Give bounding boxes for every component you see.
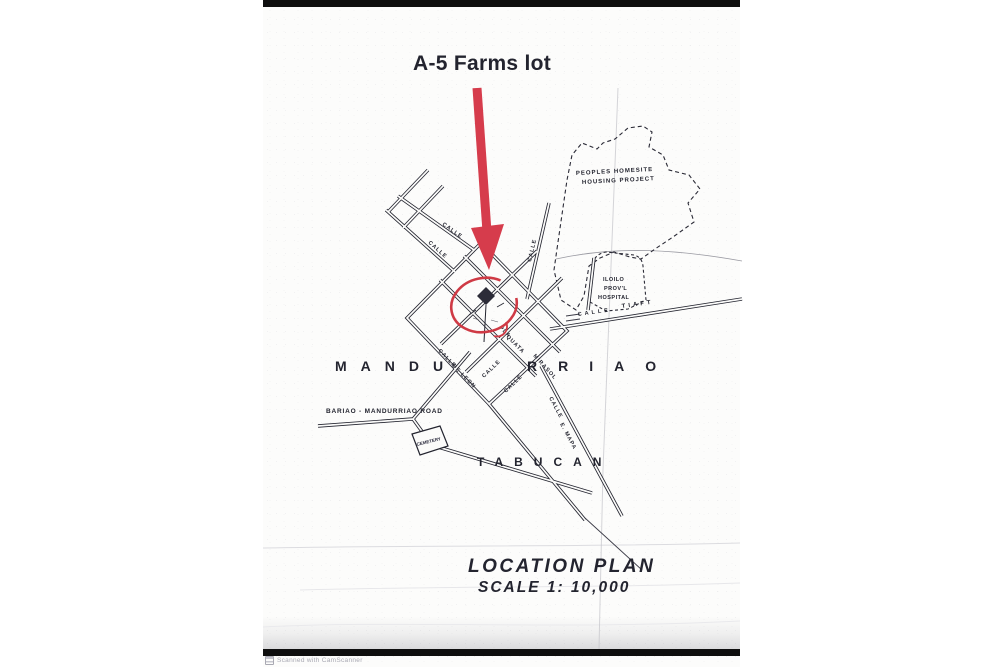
street-label: CALLE [503,374,524,395]
watermark-text: Scanned with CamScanner [277,657,363,664]
street-label: CALLE [481,359,502,380]
camscanner-watermark: Scanned with CamScanner [265,655,363,665]
crease-line [263,543,740,548]
peoples-homesite-dashed-boundary [554,126,700,310]
arrow-shaft [477,88,487,232]
bariao-mandurriao-road-label: BARIAO - MANDURRIAO ROAD [326,408,443,415]
map-title: LOCATION PLAN [468,556,655,577]
street-label: TIAFT [621,300,654,310]
hospital-label-line3: HOSPITAL [598,295,630,301]
camscanner-icon [265,656,274,665]
district-tabucan: TABUCAN [477,455,612,469]
location-plan-map: PEOPLES HOMESITE HOUSING PROJECT ILOILO … [0,0,1000,667]
page-background: PEOPLES HOMESITE HOUSING PROJECT ILOILO … [0,0,1000,667]
street-label: QUATA [505,334,526,355]
town-grid-perimeter [407,243,567,404]
hospital-label-line2: PROV'L [604,286,627,292]
cemetery-block: CEMETERY [412,426,448,455]
street-label: CALLE [577,307,611,318]
hospital-label-line1: ILOILO [603,277,625,283]
homesite-boundary: PEOPLES HOMESITE HOUSING PROJECT [554,126,700,310]
title-block: LOCATION PLAN SCALE 1: 10,000 [468,556,655,596]
terrain-curve-line [556,250,742,261]
district-mandurriao-left: MANDU [335,358,457,374]
district-mandurriao-right: RRIAO [527,358,677,374]
crease-line [263,621,740,627]
plaza-square [477,287,495,305]
annotation-label: A-5 Farms lot [413,52,551,75]
map-scale: SCALE 1: 10,000 [478,579,630,596]
homesite-label-line2: HOUSING PROJECT [582,176,655,186]
